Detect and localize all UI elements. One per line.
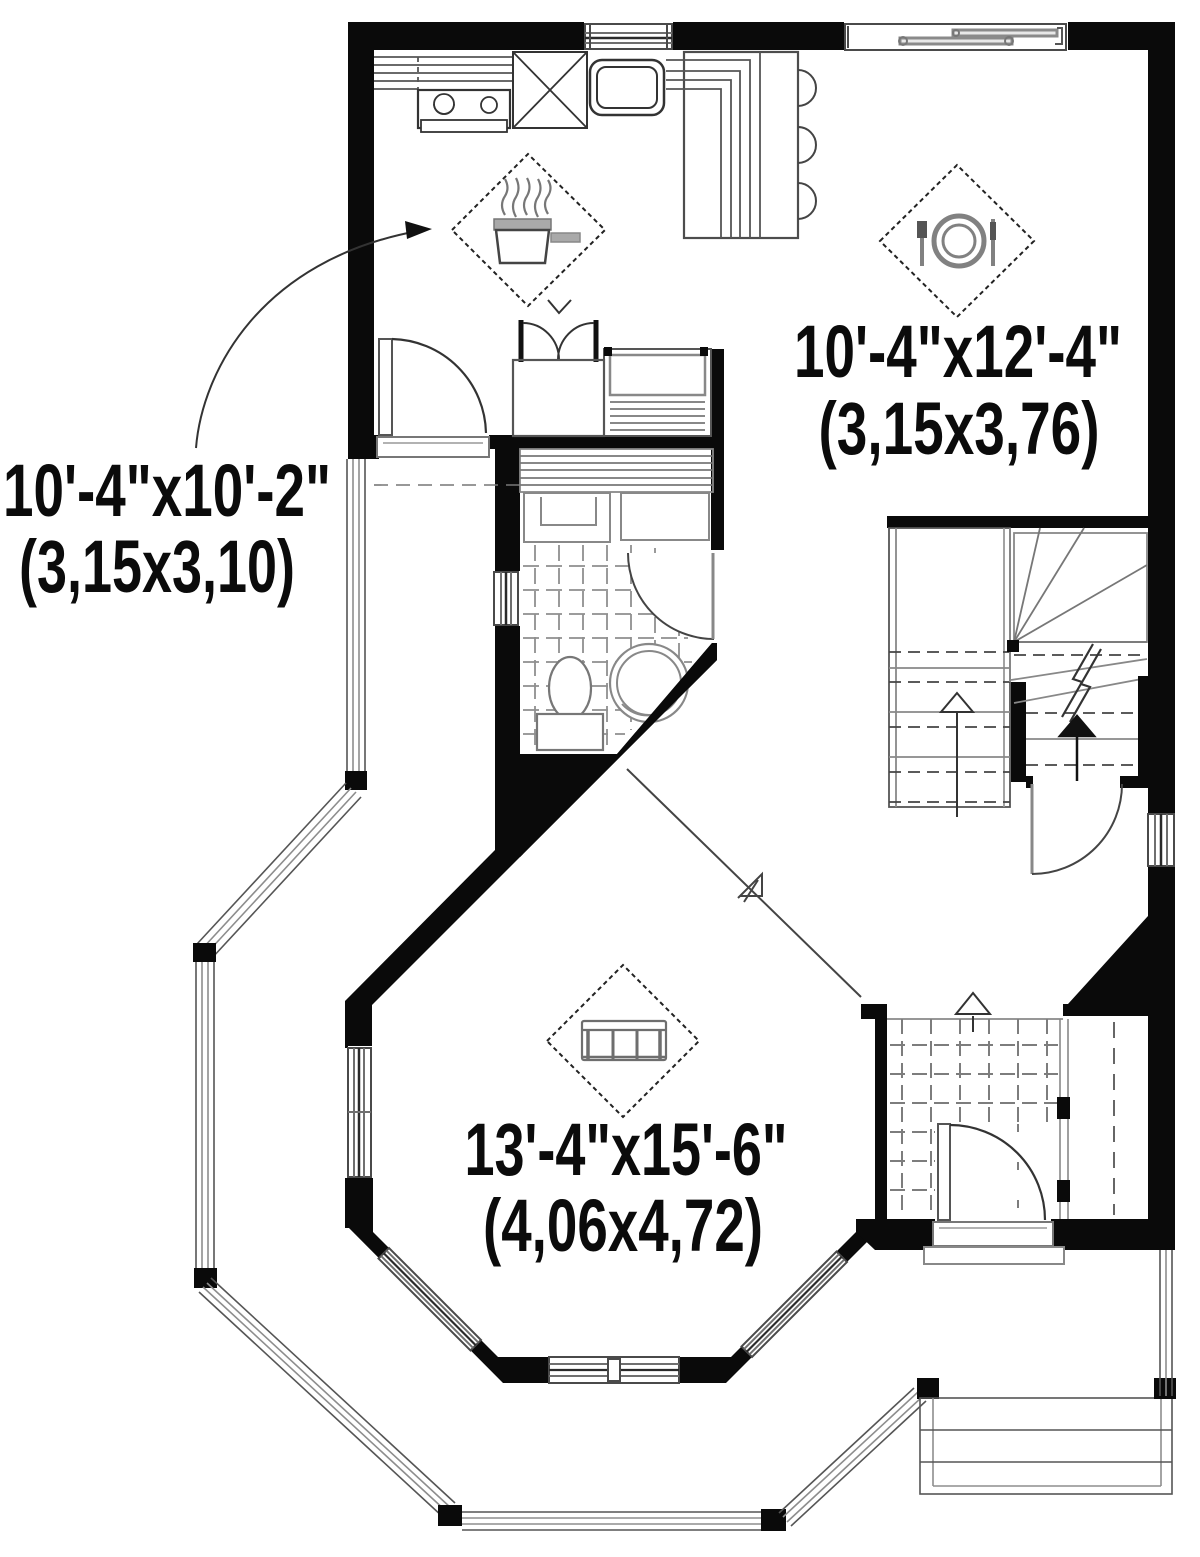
svg-text:10'-4"x10'-2": 10'-4"x10'-2": [3, 449, 331, 532]
svg-text:(3,15x3,10): (3,15x3,10): [19, 525, 295, 608]
svg-text:(4,06x4,72): (4,06x4,72): [483, 1184, 763, 1267]
svg-text:13'-4"x15'-6": 13'-4"x15'-6": [465, 1108, 788, 1191]
svg-text:10'-4"x12'-4": 10'-4"x12'-4": [794, 310, 1122, 393]
svg-text:(3,15x3,76): (3,15x3,76): [819, 387, 1100, 470]
